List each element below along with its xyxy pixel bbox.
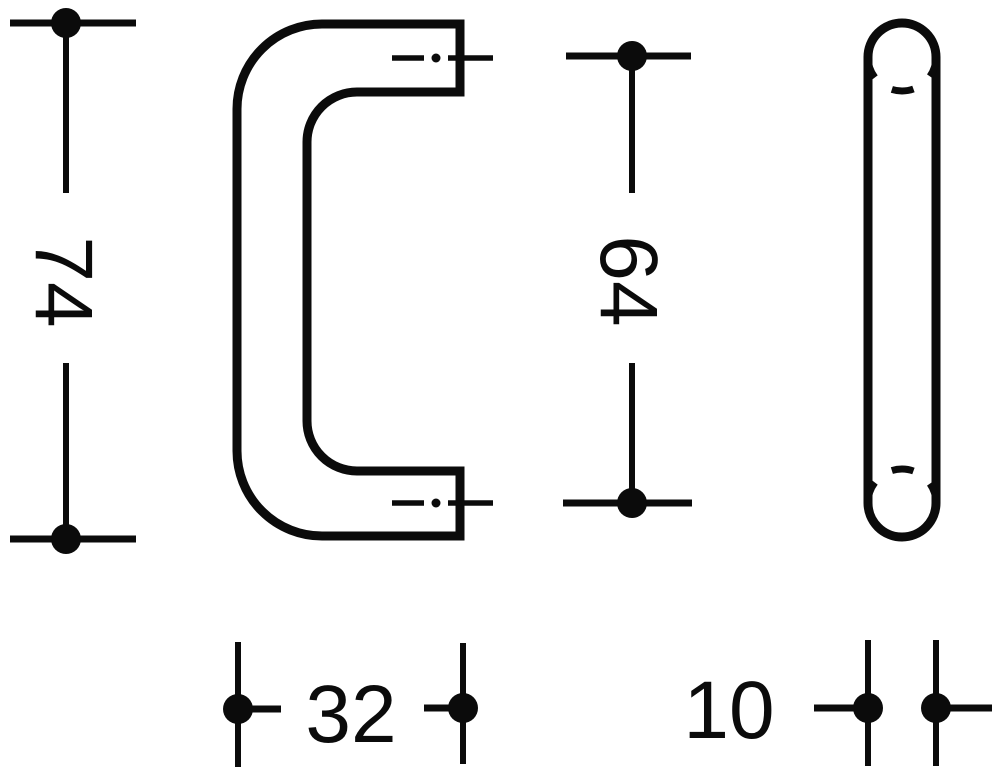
dim-64-label: 64: [583, 235, 674, 326]
handle-front-outline: [868, 23, 936, 537]
centerline-top-arm: [392, 54, 493, 63]
dimension-32: 32: [223, 642, 478, 767]
centerline-bottom-dot: [432, 499, 441, 508]
dimension-10: 10: [683, 640, 992, 766]
centerline-top-dot: [432, 54, 441, 63]
hidden-bore-bottom-arc: [868, 469, 936, 503]
dim-32-label: 32: [305, 669, 396, 760]
handle-side-view: [237, 24, 493, 536]
dim-74-label: 74: [18, 236, 109, 327]
dim-10-label: 10: [683, 665, 774, 756]
dimension-74: 74: [10, 8, 136, 554]
technical-drawing: 74 64: [0, 0, 1000, 780]
handle-front-view: [868, 23, 936, 537]
handle-profile-outline: [237, 24, 460, 536]
drawing-art: 74 64: [10, 8, 992, 767]
centerline-bottom-arm: [392, 499, 493, 508]
drawing-canvas: 74 64: [0, 0, 1000, 780]
hidden-bore-top-arc: [868, 57, 936, 91]
dimension-64: 64: [563, 41, 692, 518]
